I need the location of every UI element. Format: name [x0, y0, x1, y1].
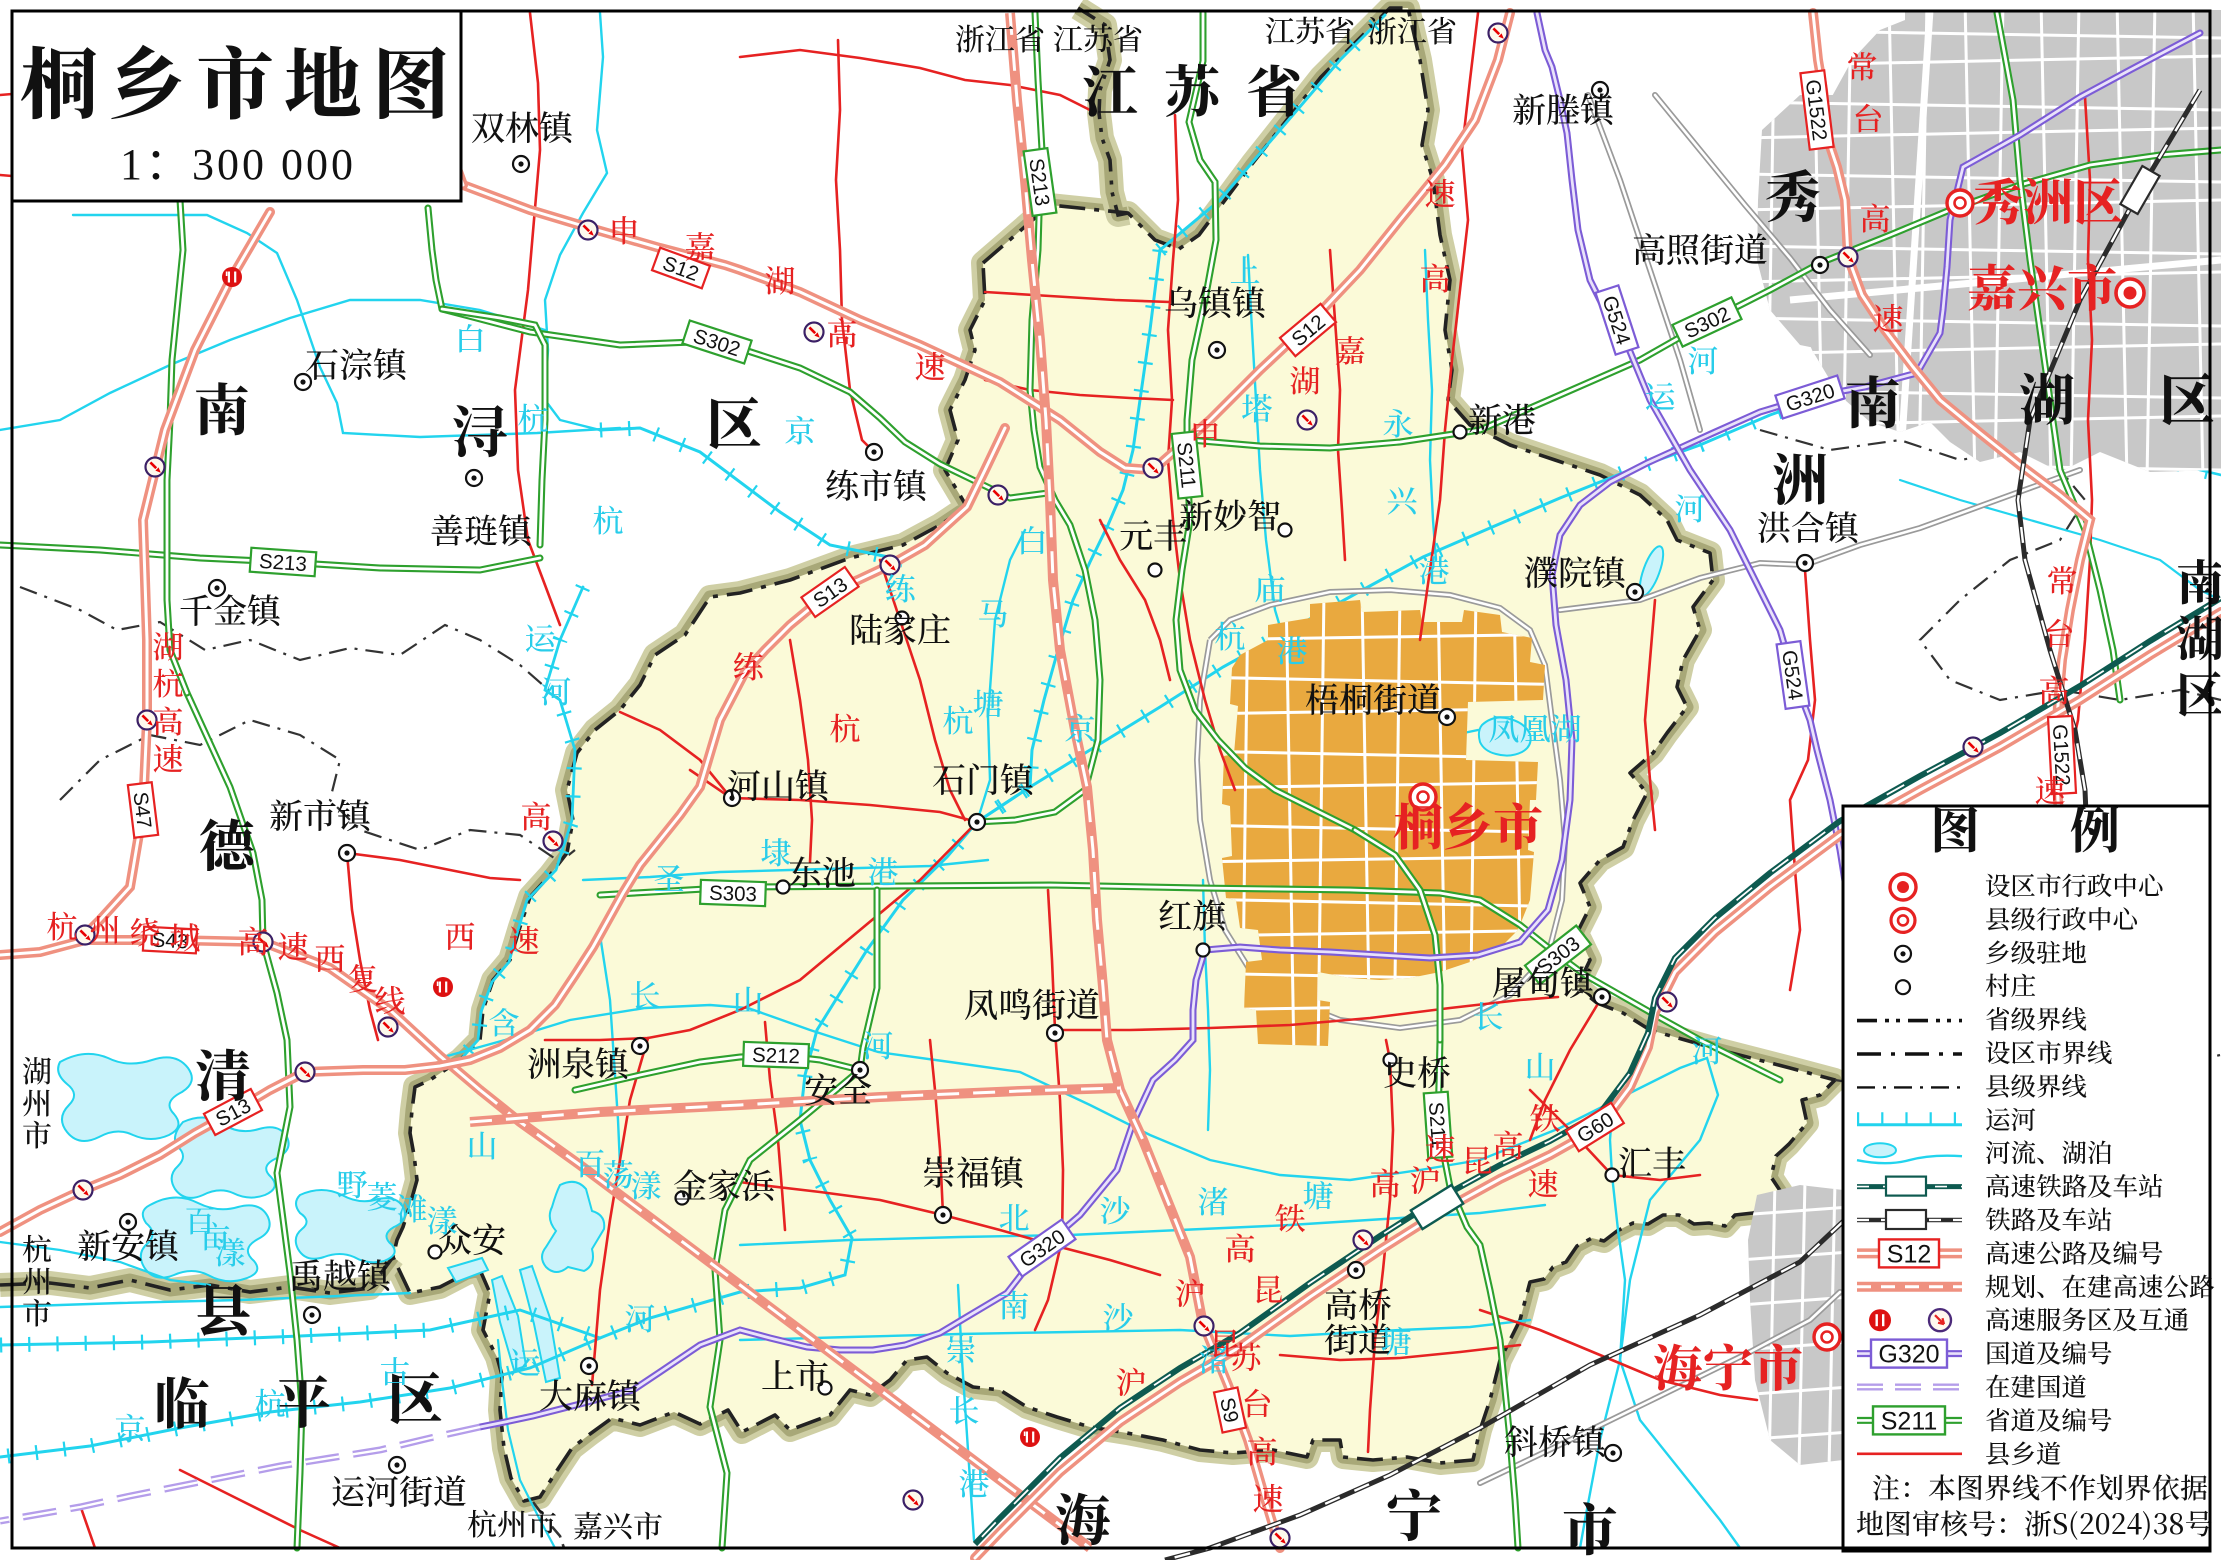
svg-text:练市镇: 练市镇 [825, 459, 927, 508]
svg-text:河山镇: 河山镇 [727, 759, 829, 808]
svg-text:高: 高 [827, 309, 858, 354]
svg-text:长: 长 [630, 971, 661, 1016]
svg-text:杭: 杭 [1215, 612, 1246, 657]
svg-text:金家浜: 金家浜 [673, 1159, 775, 1208]
svg-text:沪: 沪 [1175, 1269, 1206, 1314]
svg-text:永: 永 [1383, 399, 1414, 444]
svg-text:绕: 绕 [130, 908, 161, 953]
svg-text:白: 白 [455, 314, 486, 359]
svg-text:浔: 浔 [452, 389, 508, 469]
svg-text:宁: 宁 [1386, 1473, 1442, 1553]
svg-text:港: 港 [1419, 546, 1450, 591]
svg-text:安全: 安全 [804, 1063, 872, 1112]
svg-text:埭: 埭 [761, 828, 792, 873]
svg-text:市: 市 [22, 1289, 52, 1333]
svg-text:高: 高 [2039, 666, 2070, 711]
svg-text:高速服务区及互通: 高速服务区及互通 [1985, 1301, 2189, 1337]
svg-text:运: 运 [525, 614, 556, 659]
svg-text:京: 京 [1065, 704, 1096, 749]
svg-text:南: 南 [194, 367, 250, 447]
svg-text:洪合镇: 洪合镇 [1757, 501, 1859, 550]
svg-text:百: 百 [575, 1139, 606, 1184]
svg-text:河: 河 [1692, 1026, 1723, 1071]
svg-text:崇福镇: 崇福镇 [922, 1146, 1024, 1195]
svg-text:高: 高 [1860, 194, 1891, 239]
svg-text:申: 申 [1190, 409, 1221, 454]
svg-text:规划、在建高速公路: 规划、在建高速公路 [1985, 1268, 2215, 1304]
svg-text:大麻镇: 大麻镇 [539, 1369, 641, 1418]
svg-text:速: 速 [1425, 169, 1456, 214]
svg-text:申: 申 [609, 206, 640, 251]
svg-text:嘉兴市: 嘉兴市 [573, 1502, 663, 1546]
svg-text:高照街道: 高照街道 [1632, 223, 1768, 272]
svg-text:桐乡市地图: 桐乡市地图 [20, 23, 460, 135]
svg-text:塘: 塘 [973, 679, 1004, 724]
svg-text:圣: 圣 [654, 854, 685, 899]
svg-text:浙江省: 浙江省 [955, 15, 1045, 59]
svg-text:凤鸣街道: 凤鸣街道 [964, 978, 1100, 1027]
svg-text:S212: S212 [752, 1044, 801, 1069]
svg-text:河: 河 [1675, 484, 1706, 529]
svg-text:县: 县 [195, 1268, 251, 1348]
svg-text:东池: 东池 [788, 846, 856, 895]
svg-text:菱: 菱 [367, 1172, 398, 1217]
svg-text:千金镇: 千金镇 [179, 584, 281, 633]
svg-text:禹越镇: 禹越镇 [289, 1249, 391, 1298]
svg-text:速: 速 [153, 734, 184, 779]
svg-text:杭: 杭 [593, 496, 624, 541]
svg-text:马: 马 [978, 589, 1009, 634]
svg-text:铁: 铁 [1275, 1194, 1306, 1239]
svg-text:省道及编号: 省道及编号 [1985, 1401, 2113, 1437]
svg-text:区: 区 [2176, 657, 2221, 726]
svg-text:湖: 湖 [1290, 356, 1321, 401]
svg-text:海宁市: 海宁市 [1653, 1329, 1803, 1401]
svg-text:湖: 湖 [765, 256, 796, 301]
svg-text:设区市界线: 设区市界线 [1985, 1034, 2113, 1070]
svg-text:古: 古 [380, 1347, 411, 1392]
svg-text:海: 海 [1055, 1477, 1111, 1557]
svg-text:江苏省: 江苏省 [1265, 7, 1355, 51]
svg-text:漾: 漾 [631, 1161, 662, 1206]
svg-text:州: 州 [90, 905, 121, 950]
svg-text:G320: G320 [1878, 1341, 1939, 1369]
svg-text:S12: S12 [1887, 1240, 1931, 1268]
svg-text:S47: S47 [128, 791, 155, 830]
svg-text:速: 速 [278, 922, 309, 967]
svg-text:区: 区 [706, 381, 762, 461]
svg-text:河: 河 [863, 1021, 894, 1066]
svg-text:西: 西 [445, 912, 476, 957]
svg-text:速: 速 [2035, 766, 2066, 811]
svg-text:常: 常 [1847, 42, 1878, 87]
svg-text:漾: 漾 [215, 1228, 246, 1273]
svg-text:杭: 杭 [830, 704, 861, 749]
svg-text:速: 速 [509, 916, 540, 961]
svg-text:上: 上 [1230, 246, 1261, 291]
svg-text:渚: 渚 [1198, 1177, 1229, 1222]
svg-text:崇: 崇 [946, 1325, 977, 1370]
svg-text:山: 山 [1525, 1042, 1556, 1087]
svg-text:图: 图 [1930, 791, 1980, 863]
svg-text:杭: 杭 [255, 1379, 286, 1424]
svg-text:新港: 新港 [1468, 393, 1536, 442]
svg-text:杭: 杭 [518, 394, 549, 439]
svg-text:濮院镇: 濮院镇 [1524, 546, 1626, 595]
svg-text:新安镇: 新安镇 [77, 1219, 179, 1268]
svg-text:台: 台 [2044, 609, 2075, 654]
svg-text:市: 市 [22, 1111, 52, 1155]
svg-text:S211: S211 [1881, 1407, 1938, 1435]
svg-text:梧桐街道: 梧桐街道 [1305, 673, 1441, 722]
svg-text:村庄: 村庄 [1985, 967, 2036, 1003]
svg-text:河: 河 [625, 1294, 656, 1339]
svg-text:长: 长 [949, 1386, 980, 1431]
svg-text:野: 野 [337, 1160, 368, 1205]
svg-text:速: 速 [1873, 294, 1904, 339]
svg-text:南: 南 [999, 1281, 1030, 1326]
svg-text:高: 高 [1420, 254, 1451, 299]
svg-text:高: 高 [521, 792, 552, 837]
svg-text:陆家庄: 陆家庄 [849, 603, 951, 652]
svg-text:清: 清 [195, 1033, 251, 1113]
svg-text:石门镇: 石门镇 [932, 753, 1034, 802]
svg-text:斜桥镇: 斜桥镇 [1504, 1415, 1606, 1464]
svg-text:速: 速 [1425, 1124, 1456, 1169]
svg-text:庙: 庙 [1255, 564, 1286, 609]
svg-text:高速公路及编号: 高速公路及编号 [1985, 1234, 2164, 1270]
svg-text:杭: 杭 [943, 696, 974, 741]
svg-text:山: 山 [467, 1121, 498, 1166]
svg-text:河流、湖泊: 河流、湖泊 [1985, 1134, 2113, 1170]
svg-text:港: 港 [1277, 626, 1308, 671]
svg-text:高: 高 [1370, 1159, 1401, 1204]
svg-text:北: 北 [999, 1193, 1030, 1238]
svg-text:区: 区 [2159, 357, 2215, 437]
svg-text:昆: 昆 [1462, 1136, 1493, 1181]
svg-text:昆: 昆 [1253, 1265, 1284, 1310]
svg-text:港: 港 [959, 1459, 990, 1504]
svg-text:荡: 荡 [603, 1150, 634, 1195]
svg-text:嘉兴市: 嘉兴市 [1967, 249, 2117, 321]
svg-text:新塍镇: 新塍镇 [1512, 83, 1614, 132]
svg-text:运河: 运河 [1985, 1101, 2036, 1137]
svg-text:石淙镇: 石淙镇 [305, 338, 407, 387]
svg-text:练: 练 [733, 642, 764, 687]
svg-text:山: 山 [733, 976, 764, 1021]
svg-text:县级行政中心: 县级行政中心 [1985, 900, 2138, 936]
svg-text:嘉: 嘉 [1335, 326, 1366, 371]
svg-text:红旗: 红旗 [1158, 889, 1226, 938]
svg-text:凤凰湖: 凤凰湖 [1489, 704, 1582, 749]
svg-text:S213: S213 [258, 550, 307, 576]
svg-text:铁路及车站: 铁路及车站 [1985, 1201, 2113, 1237]
svg-text:塔: 塔 [1242, 384, 1273, 429]
svg-text:港: 港 [868, 847, 899, 892]
svg-text:嘉: 嘉 [685, 222, 716, 267]
svg-text:高: 高 [1493, 1121, 1524, 1166]
svg-text:新市镇: 新市镇 [269, 789, 371, 838]
svg-text:京: 京 [115, 1404, 146, 1449]
svg-text:铁: 铁 [1530, 1094, 1561, 1139]
svg-text:塘: 塘 [1303, 1171, 1334, 1216]
svg-text:台: 台 [1853, 94, 1884, 139]
svg-text:S303: S303 [709, 882, 758, 907]
svg-text:城: 城 [170, 913, 201, 958]
svg-text:速: 速 [1253, 1474, 1284, 1519]
svg-text:塘: 塘 [1381, 1317, 1412, 1362]
svg-text:沪: 沪 [1116, 1358, 1147, 1403]
svg-text:乡级驻地: 乡级驻地 [1985, 934, 2088, 970]
svg-text:1：300 000: 1：300 000 [120, 140, 356, 189]
svg-text:昆: 昆 [1210, 1319, 1241, 1364]
svg-text:沙: 沙 [1100, 1186, 1131, 1231]
svg-text:省级界线: 省级界线 [1985, 1001, 2088, 1037]
svg-text:杭州市: 杭州市 [467, 1500, 557, 1544]
svg-text:河: 河 [541, 667, 572, 712]
svg-text:在建国道: 在建国道 [1985, 1368, 2087, 1404]
svg-text:含: 含 [489, 998, 520, 1043]
svg-text:地图审核号：浙S(2024)38号: 地图审核号：浙S(2024)38号 [1856, 1503, 2212, 1543]
svg-text:速: 速 [915, 342, 946, 387]
svg-text:临: 临 [154, 1361, 210, 1441]
svg-text:杭: 杭 [47, 902, 78, 947]
svg-text:兴: 兴 [1387, 476, 1418, 521]
svg-text:湖: 湖 [2019, 357, 2075, 437]
svg-text:设区市行政中心: 设区市行政中心 [1985, 867, 2164, 903]
svg-text:南: 南 [1845, 360, 1901, 440]
svg-text:秀: 秀 [1765, 154, 1821, 234]
svg-text:县级界线: 县级界线 [1985, 1067, 2088, 1103]
svg-text:河: 河 [1688, 336, 1719, 381]
svg-text:善琏镇: 善琏镇 [430, 504, 532, 553]
svg-text:西: 西 [315, 934, 346, 979]
svg-text:白: 白 [1017, 516, 1048, 561]
svg-text:桐乡市: 桐乡市 [1393, 788, 1543, 860]
svg-text:运: 运 [510, 1338, 541, 1383]
svg-text:国道及编号: 国道及编号 [1985, 1335, 2113, 1371]
svg-text:高: 高 [1247, 1427, 1278, 1472]
svg-text:洲泉镇: 洲泉镇 [527, 1037, 629, 1086]
svg-text:例: 例 [2070, 791, 2120, 863]
svg-text:上市: 上市 [761, 1349, 829, 1398]
svg-text:漾: 漾 [427, 1196, 458, 1241]
svg-text:高速铁路及车站: 高速铁路及车站 [1985, 1168, 2164, 1204]
svg-text:浙江省: 浙江省 [1367, 7, 1457, 51]
svg-text:新妙智: 新妙智 [1179, 489, 1281, 538]
svg-text:沙: 沙 [1103, 1293, 1134, 1338]
svg-text:长: 长 [1473, 992, 1504, 1037]
svg-text:县乡道: 县乡道 [1985, 1435, 2062, 1471]
svg-text:屠甸镇: 屠甸镇 [1492, 956, 1594, 1005]
svg-text:线: 线 [375, 976, 406, 1021]
svg-text:高: 高 [238, 917, 269, 962]
svg-text:元丰: 元丰 [1119, 509, 1187, 558]
svg-text:双林镇: 双林镇 [471, 101, 573, 150]
svg-text:江苏省: 江苏省 [1082, 49, 1328, 129]
svg-text:汇丰: 汇丰 [1618, 1136, 1686, 1185]
svg-text:运河街道: 运河街道 [331, 1465, 467, 1514]
svg-text:史桥: 史桥 [1383, 1046, 1451, 1095]
svg-text:滩: 滩 [397, 1184, 428, 1229]
svg-text:德: 德 [199, 803, 255, 883]
svg-text:高: 高 [1225, 1224, 1256, 1269]
svg-text:运: 运 [1645, 372, 1676, 417]
svg-text:台: 台 [1242, 1379, 1273, 1424]
svg-text:注：本图界线不作划界依据: 注：本图界线不作划界依据 [1872, 1467, 2208, 1507]
svg-text:练: 练 [885, 564, 916, 609]
svg-text:京: 京 [785, 406, 816, 451]
svg-text:秀洲区: 秀洲区 [1973, 163, 2123, 235]
svg-text:常: 常 [2047, 556, 2078, 601]
svg-text:速: 速 [1528, 1159, 1559, 1204]
